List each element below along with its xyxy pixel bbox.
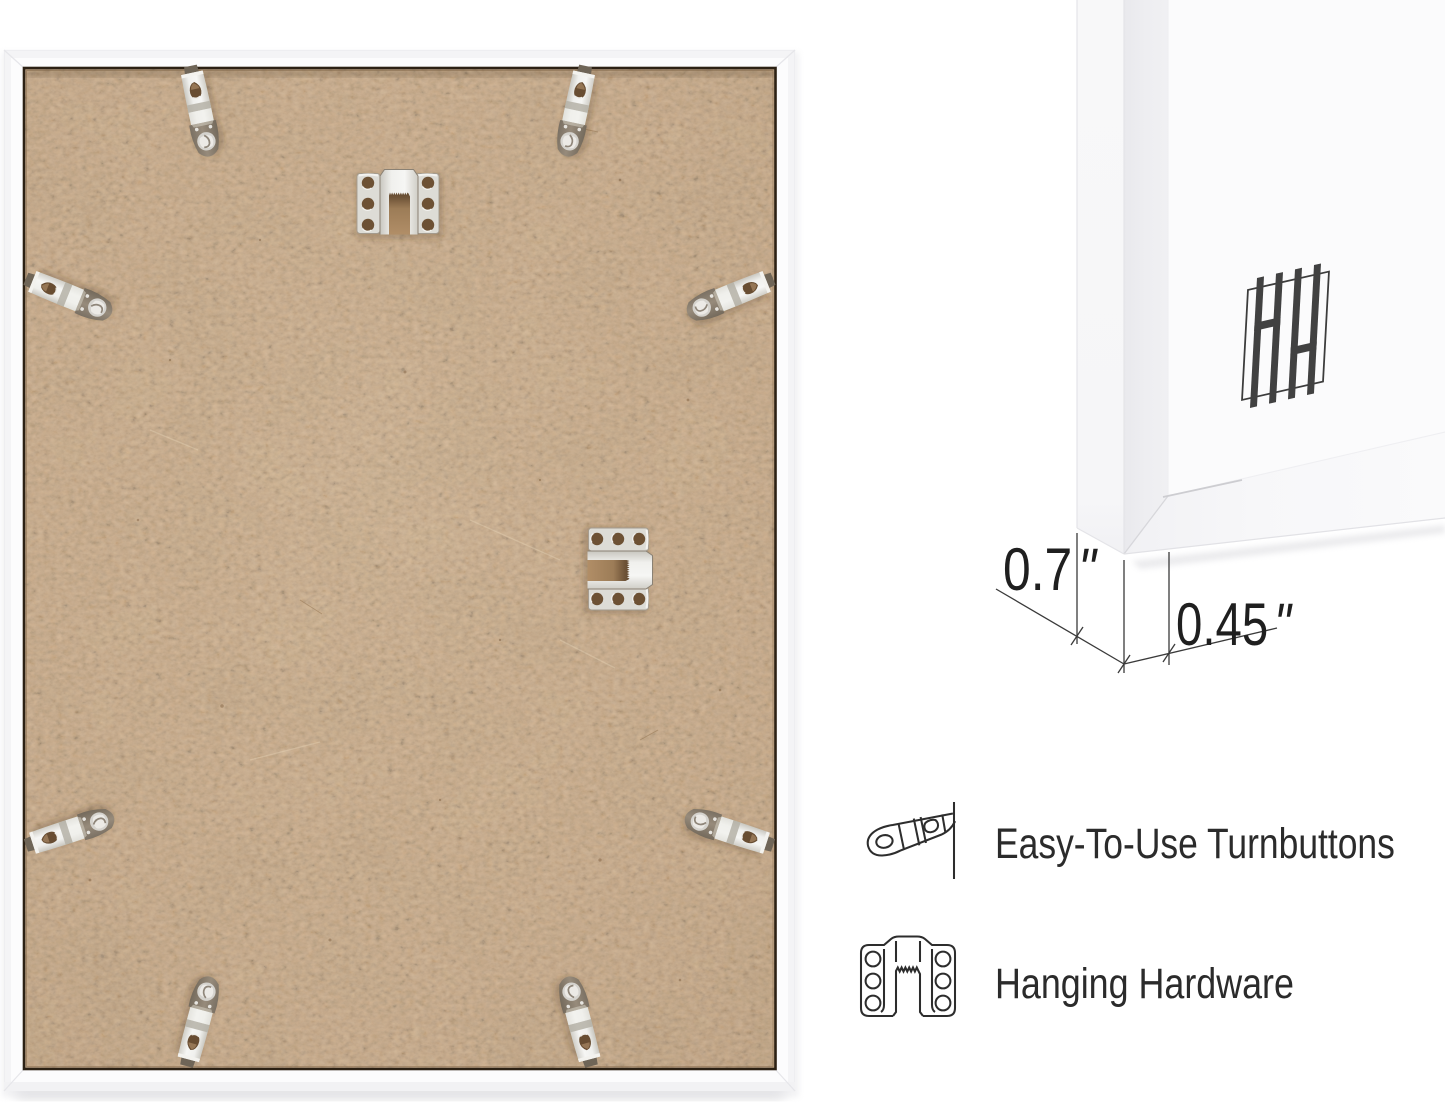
svg-text:Easy-To-Use Turnbuttons: Easy-To-Use Turnbuttons bbox=[995, 820, 1395, 868]
svg-text:0.7: 0.7 bbox=[1003, 536, 1072, 603]
svg-text:0.45: 0.45 bbox=[1176, 592, 1268, 659]
svg-text:": " bbox=[1269, 591, 1297, 658]
svg-text:Hanging Hardware: Hanging Hardware bbox=[995, 960, 1294, 1008]
